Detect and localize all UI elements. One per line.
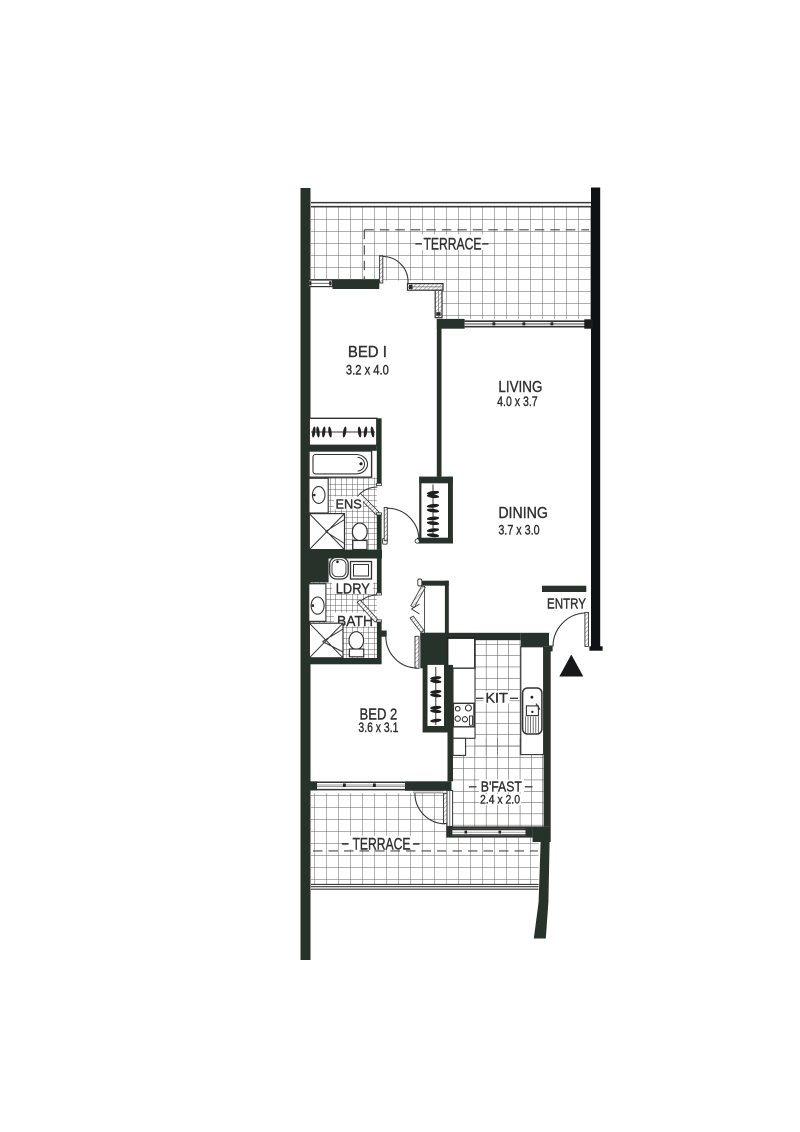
svg-text:TERRACE: TERRACE xyxy=(424,235,482,253)
svg-text:TERRACE: TERRACE xyxy=(353,835,411,853)
svg-text:ENS: ENS xyxy=(335,497,362,512)
svg-text:DINING: DINING xyxy=(498,505,548,522)
svg-text:3.7 x 3.0: 3.7 x 3.0 xyxy=(498,522,539,537)
svg-text:4.0 x 3.7: 4.0 x 3.7 xyxy=(497,394,538,409)
svg-text:2.4 x 2.0: 2.4 x 2.0 xyxy=(480,793,520,807)
svg-text:3.6 x 3.1: 3.6 x 3.1 xyxy=(358,720,398,735)
svg-text:BED I: BED I xyxy=(348,344,387,361)
svg-text:LDRY: LDRY xyxy=(336,580,370,597)
svg-text:KIT: KIT xyxy=(485,689,508,705)
svg-text:ENTRY: ENTRY xyxy=(547,596,586,612)
svg-text:3.2 x 4.0: 3.2 x 4.0 xyxy=(346,363,389,378)
